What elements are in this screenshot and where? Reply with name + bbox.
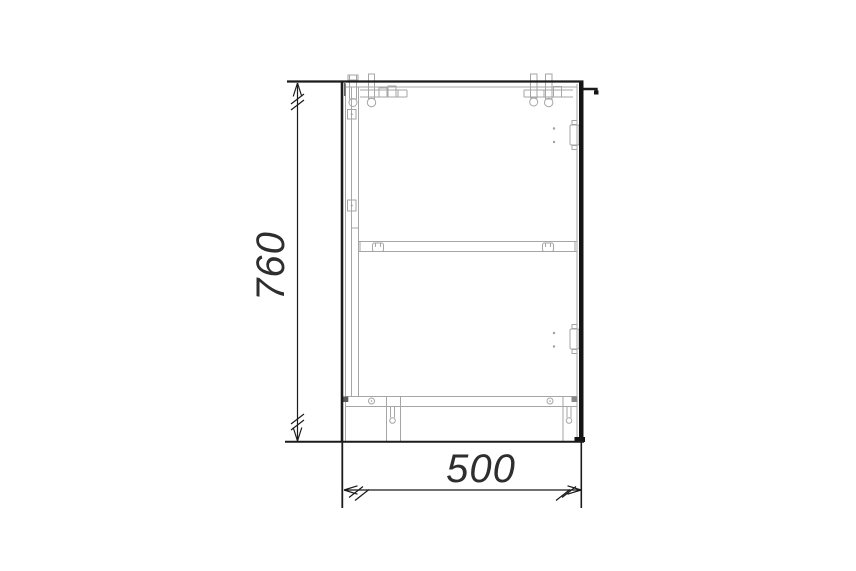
drawing-canvas: 760 500: [0, 0, 856, 571]
hinge-screw-dot: [553, 332, 555, 334]
door-panel-edge: [579, 83, 584, 438]
cam-housing: [554, 87, 562, 98]
fitting-dot: [351, 113, 353, 115]
screw-dot: [371, 400, 373, 402]
fitting-dot: [351, 205, 353, 207]
screw-dot: [549, 400, 551, 402]
shelf-support-right: [543, 243, 554, 252]
cam-bolt-stem: [531, 74, 538, 98]
cam-bolt-stem: [369, 74, 375, 99]
door-handle-end: [594, 91, 599, 95]
cam-housing: [388, 86, 396, 97]
cam-bolt-head: [349, 99, 357, 107]
hinge-screw-dot: [553, 141, 555, 143]
hinge-tick: [572, 121, 577, 125]
shelf-support-left: [373, 243, 384, 252]
left-leg-foot: [390, 418, 396, 424]
height-dimension-label: 760: [249, 231, 293, 301]
hinge-tick: [572, 146, 577, 150]
cam-bolt-head: [367, 98, 375, 106]
hinge-tick: [572, 350, 577, 354]
hinge-plate-top: [570, 125, 579, 145]
hinge-plate-bottom: [570, 329, 579, 349]
dimension-height: 760: [249, 83, 304, 441]
hinge-screw-dot: [553, 127, 555, 129]
cam-bolt-head: [530, 98, 538, 106]
panel-end-tick-right: [572, 397, 578, 403]
cabinet-drawing: 760 500: [0, 0, 856, 571]
hinge-screw-dot: [553, 345, 555, 347]
width-arrow-left: [344, 486, 369, 501]
top-rail-left: [360, 90, 407, 97]
shelf-support-notches: [376, 243, 551, 247]
right-leg-foot: [566, 418, 572, 424]
top-rail-right: [524, 90, 573, 97]
width-arrow-right: [556, 486, 581, 501]
cam-housing: [379, 88, 387, 97]
bottom-panel-lines: [346, 397, 578, 407]
cabinet-structure: [285, 81, 599, 508]
dimension-width: 500: [344, 447, 581, 501]
cabinet-internal-details: [342, 74, 579, 442]
width-dimension-label: 500: [446, 447, 516, 491]
left-leg-lines: [387, 397, 401, 442]
hinge-tick: [572, 325, 577, 329]
cam-bolt-head: [545, 98, 553, 106]
back-strip-lines: [352, 87, 359, 397]
